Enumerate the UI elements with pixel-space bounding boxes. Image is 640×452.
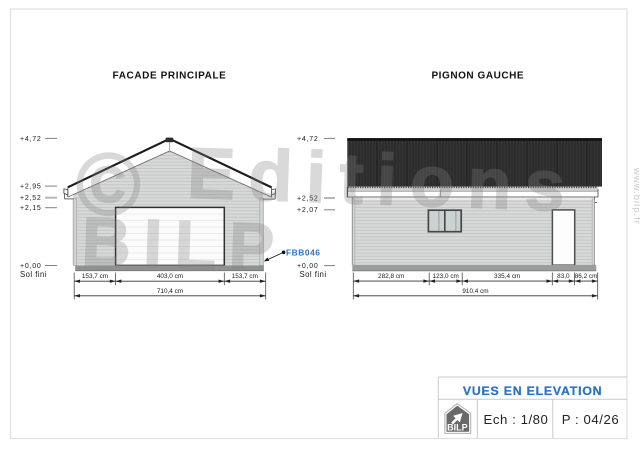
svg-text:+2,95: +2,95 [20,184,41,191]
svg-text:www.bilp.fr: www.bilp.fr [631,167,640,225]
svg-text:BILP: BILP [447,422,468,432]
svg-text:FBB046: FBB046 [286,248,321,258]
svg-text:+2,15: +2,15 [20,205,41,212]
svg-text:83,0: 83,0 [557,273,570,280]
svg-text:123,0 cm: 123,0 cm [433,273,459,280]
svg-text:Ech : 1/80: Ech : 1/80 [484,412,549,427]
svg-text:+0,00: +0,00 [20,263,41,270]
svg-text:86,2 cm: 86,2 cm [575,273,598,280]
svg-text:PIGNON GAUCHE: PIGNON GAUCHE [431,71,524,82]
svg-text:282,8 cm: 282,8 cm [378,273,404,280]
svg-text:FACADE PRINCIPALE: FACADE PRINCIPALE [113,71,227,82]
svg-text:335,4 cm: 335,4 cm [494,273,520,280]
svg-text:+4,72: +4,72 [20,136,41,143]
svg-text:Sol fini: Sol fini [20,270,47,279]
svg-text:Sol fini: Sol fini [300,270,327,279]
svg-text:BILP: BILP [81,204,288,287]
svg-text:P : 04/26: P : 04/26 [562,412,620,427]
svg-text:910,4 cm: 910,4 cm [462,288,488,295]
svg-text:VUES EN ELEVATION: VUES EN ELEVATION [463,384,603,398]
svg-text:+2,52: +2,52 [20,195,41,202]
svg-text:710,4 cm: 710,4 cm [157,288,183,295]
